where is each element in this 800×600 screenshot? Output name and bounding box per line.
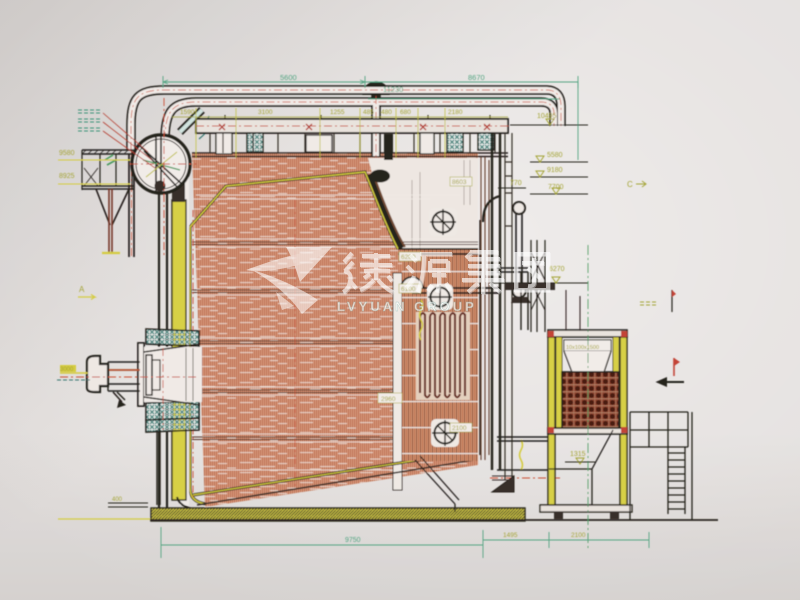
svg-text:LVYUAN GROUP: LVYUAN GROUP — [337, 299, 477, 314]
